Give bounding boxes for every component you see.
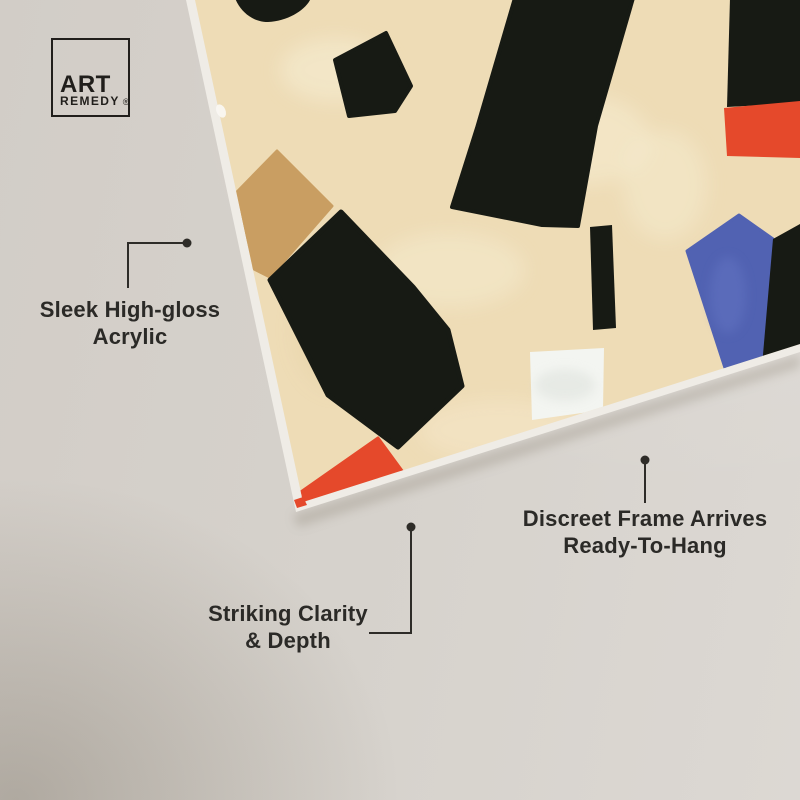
shape-orange-top-right [724, 101, 800, 158]
artwork-painting [140, 0, 800, 525]
logo-remedy-text: REMEDY [60, 95, 120, 108]
callout-frame-label: Discreet Frame Arrives Ready-To-Hang [500, 505, 790, 559]
callout-frame-line1: Discreet Frame Arrives [500, 505, 790, 532]
callout-acrylic-label: Sleek High-gloss Acrylic [10, 296, 250, 350]
shape-black-thin-bar [590, 225, 616, 330]
registered-mark-icon: ® [123, 98, 130, 107]
product-scene: ART REMEDY ® Sleek High-gloss Acrylic St… [0, 0, 800, 800]
connector-acrylic [128, 243, 183, 288]
white-rect-texture [535, 369, 595, 401]
scene-graphics [0, 0, 800, 800]
connector-acrylic-dot [183, 239, 192, 248]
blue-texture [710, 257, 746, 333]
callout-clarity-line1: Striking Clarity [168, 600, 408, 627]
connector-frame-dot [641, 456, 650, 465]
callout-frame-line2: Ready-To-Hang [500, 532, 790, 559]
shape-black-top-right [727, 0, 800, 107]
connector-clarity-dot [407, 523, 416, 532]
brand-logo: ART REMEDY ® [51, 38, 130, 117]
logo-art-text: ART [60, 74, 123, 95]
callout-clarity-label: Striking Clarity & Depth [168, 600, 408, 654]
callout-acrylic-line1: Sleek High-gloss [10, 296, 250, 323]
callout-clarity-line2: & Depth [168, 627, 408, 654]
callout-acrylic-line2: Acrylic [10, 323, 250, 350]
